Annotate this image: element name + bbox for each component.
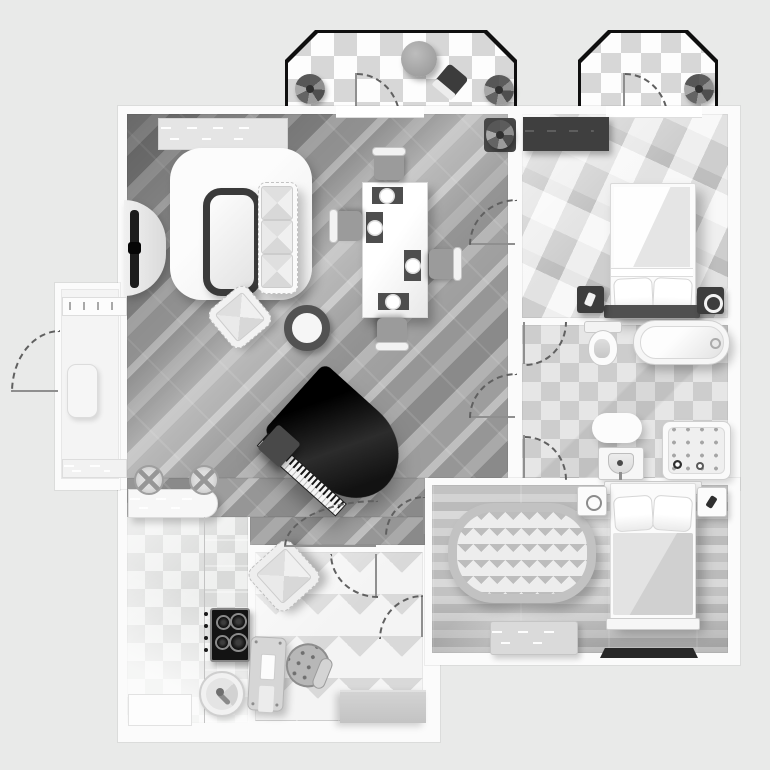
washbasin-faucet-icon [619, 472, 622, 480]
bathtub-drain-icon [710, 338, 721, 349]
bar-stool-2 [189, 465, 219, 495]
study-armchair-cushion [256, 548, 312, 604]
burner-icon [215, 635, 230, 650]
balcony-round-table [401, 41, 437, 77]
sofa [258, 182, 298, 294]
balcony-right-plant-icon [684, 74, 714, 104]
sofa-cushion [261, 220, 293, 254]
blanket [613, 533, 693, 615]
bedroom-master-bed [610, 183, 696, 319]
pillow [652, 495, 693, 533]
plate [367, 220, 383, 236]
shower-cabin [662, 421, 731, 480]
dining-chair-right [429, 249, 457, 279]
nightstand-ring [577, 486, 607, 516]
dining-chair-left [334, 211, 362, 241]
desk-items-icon [260, 654, 276, 681]
ring-icon [586, 495, 602, 511]
bedroom-master-dark-rug [523, 117, 609, 151]
shower-knob-icon [696, 462, 704, 470]
entry-door-mat [67, 364, 98, 418]
sofa-cushion [261, 254, 293, 288]
washbasin-drain-icon [617, 460, 623, 466]
balcony-left [285, 30, 517, 118]
balcony-left-plant-1-icon [295, 74, 325, 104]
round-side-table [284, 305, 330, 351]
tv-mount [128, 242, 141, 254]
bar-stool-1 [134, 465, 164, 495]
entry-door-swing [11, 330, 60, 392]
balcony-left-plant-2-icon [484, 75, 514, 105]
living-plant-icon [486, 120, 514, 149]
sofa-cushion [261, 186, 293, 220]
floor-plan-canvas [0, 0, 770, 770]
bathtub [633, 320, 730, 365]
phone-icon [584, 292, 596, 307]
bedroom-master-window [606, 106, 702, 118]
bedroom-second-bed [610, 483, 696, 625]
nightstand-phone-2 [697, 487, 727, 517]
cooktop-knobs-icon [204, 612, 208, 616]
bedroom-second-footboard [606, 618, 700, 630]
bed-fold [611, 268, 693, 277]
kitchen-lower-counter [128, 694, 192, 726]
bedroom-second-bench [490, 621, 578, 655]
study-side-table [340, 690, 426, 723]
pillow [613, 495, 654, 533]
bed-sheet [614, 187, 690, 267]
burner-icon [230, 613, 247, 630]
toilet [584, 321, 620, 365]
burner-icon [216, 615, 231, 630]
plate [379, 188, 395, 204]
dark-door-mat [600, 648, 698, 658]
cooktop [210, 608, 250, 662]
speaker-icon [704, 294, 723, 313]
oval-chevron-rug [448, 503, 596, 603]
window-sideboard [158, 118, 288, 150]
kitchen-faucet-base-icon [216, 688, 224, 696]
plate [385, 294, 401, 310]
toilet-bowl-inner [594, 339, 610, 358]
nightstand-phone [577, 286, 604, 313]
coffee-table [203, 188, 261, 296]
bedroom-master-headboard [604, 305, 700, 318]
washbasin [598, 447, 644, 480]
shower-knob-icon [673, 460, 682, 469]
burner-icon [229, 633, 248, 652]
phone-icon [705, 495, 717, 509]
dining-table [362, 182, 428, 318]
dining-chair-top [374, 152, 404, 180]
kitchen-sink [199, 671, 245, 717]
living-balcony-window [336, 106, 424, 118]
desk-screws-icon [255, 640, 258, 643]
dining-chair-bottom [377, 318, 407, 346]
nightstand-speaker [697, 287, 724, 314]
plate [405, 258, 421, 274]
bath-mat [592, 413, 642, 443]
entry-shelf [62, 459, 127, 478]
radiator [62, 297, 127, 316]
